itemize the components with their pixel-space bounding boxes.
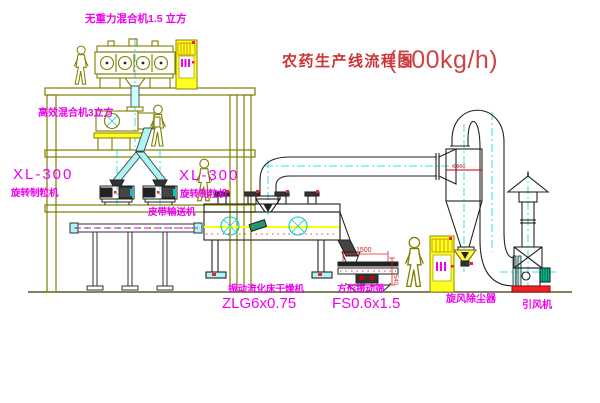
label-gravity-free-mixer: 无重力混合机1.5 立方	[84, 12, 187, 25]
process-flow-diagram: 农药生产线流程图 (500kg/h) 无重力混合机1.5 立方 高效混合机3立方…	[0, 0, 600, 403]
label-dryer-name: 振动流化床干燥机	[228, 283, 305, 295]
y-chute	[113, 152, 166, 180]
label-cyclone: 旋风除尘器	[445, 292, 497, 305]
person-floor2	[151, 105, 166, 146]
label-fan: 引风机	[522, 298, 552, 311]
dim-screen-height: 540	[392, 275, 398, 286]
gravity-free-mixer	[95, 39, 187, 107]
dim-screen-length: 1500	[356, 247, 372, 254]
fluid-bed-dryer	[204, 190, 358, 278]
belt-conveyor	[70, 223, 202, 290]
cyclone-separator	[446, 110, 504, 266]
dryer-nozzles	[215, 190, 319, 204]
label-granulator-mid-model: XL-300	[179, 167, 239, 184]
diagram-svg: 农药生产线流程图 (500kg/h) 无重力混合机1.5 立方 高效混合机3立方…	[0, 0, 600, 403]
downcomer-duct	[480, 232, 521, 287]
label-granulator-left-model: XL-300	[13, 166, 73, 183]
label-granulator-left-name: 旋转制粒机	[10, 187, 59, 199]
label-screen-model: FS0.6x1.5	[332, 295, 400, 312]
person-roof	[74, 46, 88, 84]
text-labels: 农药生产线流程图 (500kg/h) 无重力混合机1.5 立方 高效混合机3立方…	[10, 12, 552, 312]
label-belt-conveyor: 皮带输送机	[147, 206, 196, 218]
label-high-efficiency-mixer: 高效混合机3立方	[38, 106, 114, 119]
person-ground	[405, 237, 423, 286]
title-capacity: (500kg/h)	[388, 46, 498, 74]
label-granulator-mid-name: 旋转制粒机	[179, 188, 228, 200]
control-cabinet-2	[430, 236, 454, 292]
dim-cyclone-note: Φ600	[452, 164, 466, 170]
label-dryer-model: ZLG6x0.75	[222, 295, 296, 312]
control-cabinet-1	[176, 40, 197, 89]
label-screen-name: 方形振动筛	[337, 283, 385, 295]
